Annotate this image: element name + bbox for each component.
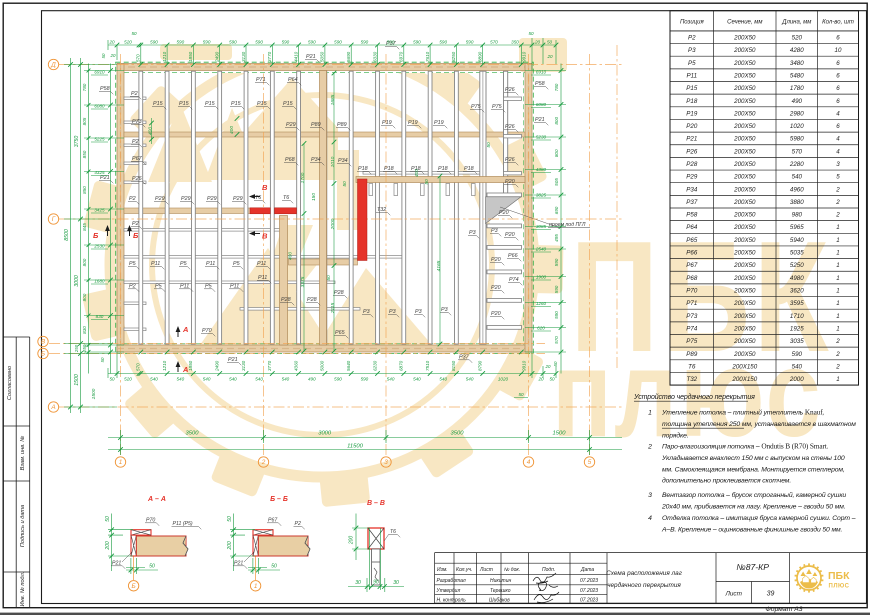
svg-text:5230: 5230 [536, 135, 547, 140]
svg-text:В: В [262, 232, 268, 241]
svg-text:850: 850 [82, 186, 87, 194]
svg-text:1: 1 [836, 288, 839, 295]
svg-text:1500: 1500 [553, 431, 567, 437]
svg-text:9910: 9910 [522, 360, 527, 371]
svg-text:Т6: Т6 [688, 363, 696, 370]
svg-text:8150: 8150 [451, 360, 456, 371]
svg-text:200Х50: 200Х50 [733, 98, 756, 105]
svg-text:3130: 3130 [241, 51, 246, 62]
svg-text:200: 200 [105, 541, 111, 551]
svg-text:Инв. № подл.: Инв. № подл. [20, 572, 26, 607]
svg-text:Шибаков: Шибаков [489, 598, 510, 604]
svg-text:590: 590 [439, 40, 447, 45]
svg-text:490: 490 [308, 377, 316, 382]
svg-text:805: 805 [82, 117, 87, 125]
svg-text:3620: 3620 [790, 288, 804, 295]
svg-text:200Х50: 200Х50 [733, 72, 756, 79]
svg-text:2: 2 [835, 186, 840, 193]
svg-text:Лист: Лист [724, 591, 742, 598]
svg-text:Позиция: Позиция [680, 20, 705, 26]
svg-text:6: 6 [836, 35, 840, 42]
svg-text:570: 570 [554, 336, 559, 344]
svg-text:Р5: Р5 [688, 60, 696, 67]
svg-text:1700: 1700 [300, 172, 306, 183]
svg-text:6: 6 [836, 60, 840, 67]
svg-text:200Х50: 200Х50 [733, 110, 756, 117]
svg-text:540: 540 [387, 377, 395, 382]
svg-text:830: 830 [96, 314, 104, 319]
svg-text:Р65: Р65 [686, 237, 698, 244]
svg-text:Длина, мм: Длина, мм [781, 20, 811, 26]
svg-text:Г: Г [52, 216, 56, 223]
svg-text:1020: 1020 [498, 377, 509, 382]
svg-text:8250: 8250 [451, 51, 456, 62]
svg-text:50: 50 [101, 53, 106, 58]
svg-text:4: 4 [836, 148, 840, 155]
svg-text:50: 50 [486, 142, 492, 148]
svg-text:Р68: Р68 [686, 275, 698, 282]
svg-text:50: 50 [100, 357, 105, 362]
svg-text:5480: 5480 [790, 72, 804, 79]
svg-text:590: 590 [334, 40, 342, 45]
svg-text:495: 495 [554, 234, 559, 242]
svg-text:1900: 1900 [536, 275, 547, 280]
svg-text:В – В: В – В [367, 500, 385, 507]
svg-text:570: 570 [792, 148, 803, 155]
svg-text:Кол.уч.: Кол.уч. [456, 567, 472, 573]
svg-text:20: 20 [537, 377, 544, 382]
svg-text:1210: 1210 [162, 360, 167, 371]
svg-text:5: 5 [836, 174, 840, 181]
svg-text:Изм.: Изм. [437, 567, 448, 573]
svg-text:50: 50 [131, 31, 137, 36]
svg-text:Р66: Р66 [686, 250, 698, 257]
svg-text:Т32: Т32 [686, 376, 697, 383]
svg-text:07.2023: 07.2023 [580, 578, 598, 584]
svg-text:Д: Д [50, 62, 56, 69]
svg-text:А: А [182, 325, 188, 334]
svg-text:200Х50: 200Х50 [733, 313, 756, 320]
svg-text:Устройство чердачного перекрыт: Устройство чердачного перекрытия [633, 393, 755, 401]
svg-text:200Х150: 200Х150 [731, 363, 757, 370]
svg-text:1850: 1850 [188, 51, 193, 62]
svg-text:А–В. Крепление – оцинкованные: А–В. Крепление – оцинкованные финишные г… [661, 525, 843, 533]
svg-text:6910: 6910 [536, 70, 547, 75]
svg-text:50: 50 [518, 392, 524, 397]
svg-text:4: 4 [648, 515, 652, 522]
svg-text:200Х50: 200Х50 [733, 123, 756, 130]
svg-text:1: 1 [836, 250, 839, 257]
svg-text:Р34: Р34 [686, 186, 698, 193]
svg-text:Р64: Р64 [686, 224, 698, 231]
svg-text:6870: 6870 [399, 360, 404, 371]
svg-text:3: 3 [384, 459, 388, 466]
svg-text:6230: 6230 [372, 360, 377, 371]
svg-text:1: 1 [648, 410, 652, 417]
svg-text:8790: 8790 [478, 360, 483, 371]
svg-text:3770: 3770 [267, 51, 272, 62]
svg-text:Б – Б: Б – Б [270, 496, 288, 503]
svg-text:Р73: Р73 [686, 313, 698, 320]
svg-text:520: 520 [792, 35, 803, 42]
svg-text:590: 590 [203, 40, 211, 45]
svg-text:2980: 2980 [789, 110, 804, 117]
svg-text:Б: Б [93, 231, 99, 240]
svg-text:3595: 3595 [790, 300, 804, 307]
svg-text:Р26: Р26 [686, 148, 698, 155]
svg-text:200Х50: 200Х50 [733, 275, 756, 282]
svg-text:50: 50 [105, 516, 111, 522]
svg-text:4: 4 [527, 459, 531, 466]
svg-text:1260: 1260 [536, 301, 547, 306]
svg-text:10: 10 [835, 47, 842, 54]
svg-text:200Х50: 200Х50 [733, 161, 756, 168]
svg-text:1: 1 [119, 459, 123, 466]
svg-text:2000: 2000 [789, 376, 804, 383]
svg-text:540: 540 [229, 377, 237, 382]
svg-text:5250: 5250 [790, 262, 804, 269]
svg-text:20: 20 [108, 40, 115, 45]
svg-text:3000: 3000 [74, 275, 80, 287]
svg-text:590: 590 [176, 40, 184, 45]
svg-text:20: 20 [534, 40, 541, 45]
svg-text:5225: 5225 [94, 137, 105, 142]
svg-text:590: 590 [792, 351, 803, 358]
svg-text:350: 350 [511, 40, 519, 45]
svg-text:Б: Б [132, 583, 136, 590]
svg-text:5690: 5690 [346, 51, 351, 62]
svg-text:1500: 1500 [74, 374, 80, 386]
svg-text:2: 2 [835, 338, 840, 345]
svg-text:Р19: Р19 [686, 110, 698, 117]
svg-text:3085: 3085 [536, 224, 547, 229]
svg-text:200Х50: 200Х50 [733, 224, 756, 231]
svg-text:570: 570 [136, 54, 141, 62]
svg-text:3480: 3480 [790, 60, 804, 67]
svg-text:90: 90 [373, 580, 379, 586]
svg-text:Р21: Р21 [686, 136, 697, 143]
svg-text:540: 540 [176, 377, 184, 382]
svg-text:50: 50 [547, 40, 553, 45]
svg-text:4165: 4165 [436, 260, 442, 271]
svg-text:1680: 1680 [94, 279, 105, 284]
svg-text:2: 2 [261, 459, 266, 466]
svg-text:50: 50 [553, 361, 558, 366]
svg-text:540: 540 [792, 174, 803, 181]
svg-text:200Х50: 200Х50 [733, 250, 756, 257]
svg-text:200Х50: 200Х50 [733, 338, 756, 345]
svg-text:830: 830 [82, 326, 87, 334]
svg-text:590: 590 [361, 377, 369, 382]
svg-text:3130: 3130 [241, 360, 246, 371]
svg-text:800: 800 [554, 117, 559, 125]
svg-text:07.2023: 07.2023 [580, 588, 598, 594]
svg-text:50: 50 [149, 564, 155, 570]
svg-text:Взам. инв. №: Взам. инв. № [20, 436, 26, 471]
svg-text:1010: 1010 [330, 156, 336, 167]
svg-text:9910: 9910 [522, 51, 527, 62]
svg-text:39: 39 [767, 591, 775, 598]
svg-text:6080: 6080 [94, 104, 105, 109]
svg-text:200Х50: 200Х50 [733, 35, 756, 42]
svg-text:Р37: Р37 [686, 199, 698, 206]
svg-text:200Х150: 200Х150 [731, 376, 757, 383]
svg-text:200Х50: 200Х50 [733, 351, 756, 358]
svg-text:2: 2 [835, 199, 840, 206]
svg-text:Лист: Лист [479, 567, 493, 573]
svg-text:3500: 3500 [186, 431, 200, 437]
svg-text:6: 6 [836, 85, 840, 92]
svg-text:Утепление потолка – плитный ут: Утепление потолка – плитный утеплитель K… [661, 408, 825, 417]
svg-text:Согласовано: Согласовано [7, 366, 13, 400]
svg-text:570: 570 [136, 363, 141, 371]
svg-text:540: 540 [150, 377, 158, 382]
svg-text:1: 1 [836, 262, 839, 269]
svg-text:6: 6 [836, 98, 840, 105]
svg-text:Сечение, мм: Сечение, мм [727, 20, 762, 26]
svg-text:2530: 2530 [93, 244, 105, 249]
svg-text:1500: 1500 [91, 388, 97, 399]
svg-text:7610: 7610 [425, 51, 430, 62]
svg-text:2: 2 [647, 444, 652, 451]
svg-text:4: 4 [836, 136, 840, 143]
svg-text:400: 400 [414, 169, 420, 177]
svg-text:590: 590 [387, 40, 395, 45]
svg-text:3035: 3035 [790, 338, 804, 345]
svg-text:690: 690 [554, 206, 559, 214]
svg-text:540: 540 [792, 363, 803, 370]
svg-text:590: 590 [413, 40, 421, 45]
svg-text:590: 590 [554, 285, 559, 293]
svg-text:6330: 6330 [372, 51, 377, 62]
svg-text:400: 400 [229, 126, 235, 134]
svg-text:Никитин: Никитин [490, 578, 511, 584]
svg-text:1: 1 [836, 275, 839, 282]
svg-text:Терешко: Терешко [490, 588, 511, 594]
svg-text:Паро-влагоизоляция потолка – O: Паро-влагоизоляция потолка – Ondutis B (… [662, 442, 829, 451]
svg-text:6: 6 [836, 123, 840, 130]
svg-text:мм. Самоклеящаяся мембрана. Мо: мм. Самоклеящаяся мембрана. Монтируется … [662, 465, 845, 473]
svg-text:980: 980 [792, 212, 803, 219]
svg-text:№ док.: № док. [504, 567, 520, 573]
svg-text:200Х50: 200Х50 [733, 199, 756, 206]
svg-text:5640: 5640 [346, 360, 351, 371]
svg-text:Б: Б [41, 351, 45, 358]
svg-text:1: 1 [254, 583, 258, 590]
svg-text:5940: 5940 [790, 237, 804, 244]
svg-text:4360: 4360 [293, 360, 298, 371]
svg-text:А – А: А – А [147, 496, 166, 503]
svg-text:толщина утепления 250 мм, уста: толщина утепления 250 мм, устанавливаетс… [662, 421, 856, 428]
svg-text:540: 540 [413, 377, 421, 382]
svg-text:Утвердил: Утвердил [437, 588, 461, 594]
svg-text:6080: 6080 [536, 102, 547, 107]
svg-text:570: 570 [490, 40, 498, 45]
svg-text:3375: 3375 [300, 276, 306, 287]
svg-text:590: 590 [361, 40, 369, 45]
svg-text:490: 490 [792, 98, 803, 105]
svg-text:Р74: Р74 [686, 325, 698, 332]
svg-text:проем под ПГЛ: проем под ПГЛ [549, 222, 586, 228]
svg-text:200Х50: 200Х50 [733, 186, 756, 193]
svg-text:6970: 6970 [399, 51, 404, 62]
svg-text:3: 3 [836, 161, 840, 168]
svg-text:30: 30 [393, 580, 399, 586]
svg-text:Р3: Р3 [688, 47, 696, 54]
svg-text:540: 540 [439, 377, 447, 382]
svg-text:7510: 7510 [425, 360, 430, 371]
svg-text:200: 200 [227, 541, 233, 551]
svg-text:порядке.: порядке. [662, 431, 689, 439]
svg-text:А: А [50, 404, 55, 411]
svg-text:200Х50: 200Х50 [733, 85, 756, 92]
svg-text:3: 3 [648, 492, 652, 499]
svg-text:400: 400 [288, 252, 294, 260]
svg-text:4325: 4325 [94, 170, 105, 175]
svg-text:200Х50: 200Х50 [733, 262, 756, 269]
svg-text:590: 590 [334, 377, 342, 382]
svg-text:Р20: Р20 [686, 123, 698, 130]
svg-text:1925: 1925 [790, 325, 804, 332]
svg-text:Подп.: Подп. [542, 567, 555, 573]
svg-text:Вентзазор потолка – брусок ст: Вентзазор потолка – брусок строганный, к… [662, 491, 846, 499]
svg-text:800: 800 [82, 293, 87, 301]
svg-text:200Х50: 200Х50 [733, 237, 756, 244]
svg-text:Р67: Р67 [686, 262, 698, 269]
svg-text:520: 520 [124, 377, 132, 382]
svg-text:6: 6 [836, 72, 840, 79]
svg-text:2: 2 [835, 351, 840, 358]
svg-text:200Х50: 200Х50 [733, 148, 756, 155]
svg-text:50: 50 [342, 181, 348, 187]
svg-text:Разработал: Разработал [437, 578, 466, 584]
svg-text:5035: 5035 [790, 250, 804, 257]
svg-text:4380: 4380 [536, 167, 547, 172]
svg-text:дополнительно проклеивается ск: дополнительно проклеивается скотчем. [662, 477, 791, 485]
svg-text:4960: 4960 [790, 186, 804, 193]
svg-text:590: 590 [466, 40, 474, 45]
svg-text:620: 620 [537, 326, 545, 331]
svg-text:Кол-во, шт: Кол-во, шт [822, 20, 854, 26]
svg-text:4: 4 [836, 110, 840, 117]
svg-text:07.2023: 07.2023 [580, 598, 598, 604]
svg-text:Дата: Дата [580, 567, 594, 573]
svg-text:5050: 5050 [320, 51, 325, 62]
svg-text:ПЛЮС: ПЛЮС [829, 584, 850, 590]
svg-text:200Х50: 200Х50 [733, 212, 756, 219]
svg-text:200Х50: 200Х50 [733, 136, 756, 143]
svg-text:50: 50 [549, 377, 555, 382]
svg-text:590: 590 [308, 40, 316, 45]
svg-text:50: 50 [271, 564, 277, 570]
svg-text:590: 590 [554, 311, 559, 319]
svg-text:200Х50: 200Х50 [733, 325, 756, 332]
svg-text:200: 200 [349, 536, 355, 546]
svg-text:Р71: Р71 [686, 300, 697, 307]
svg-text:3880: 3880 [790, 199, 804, 206]
svg-text:20: 20 [110, 53, 116, 58]
svg-text:Н. контроль: Н. контроль [437, 598, 467, 604]
svg-text:250: 250 [74, 344, 79, 353]
svg-text:590: 590 [150, 40, 158, 45]
svg-text:11500: 11500 [347, 444, 363, 450]
svg-text:400: 400 [148, 127, 154, 135]
svg-text:В: В [262, 183, 268, 192]
svg-text:1685: 1685 [330, 94, 336, 105]
svg-text:Р28: Р28 [686, 161, 698, 168]
svg-text:590: 590 [282, 40, 290, 45]
svg-text:800: 800 [554, 149, 559, 157]
svg-text:540: 540 [466, 377, 474, 382]
svg-text:3750: 3750 [74, 136, 80, 148]
svg-text:Р75: Р75 [686, 338, 698, 345]
svg-text:чердачного перекрытия: чердачного перекрытия [607, 581, 681, 589]
svg-text:200Х50: 200Х50 [733, 300, 756, 307]
svg-text:50: 50 [326, 275, 332, 281]
svg-text:2540: 2540 [535, 247, 547, 252]
svg-text:50: 50 [424, 179, 430, 185]
svg-text:200Х50: 200Х50 [733, 288, 756, 295]
svg-text:50: 50 [227, 516, 233, 522]
svg-text:150: 150 [311, 193, 317, 201]
svg-text:540: 540 [203, 377, 211, 382]
svg-text:520: 520 [124, 40, 132, 45]
svg-text:5000: 5000 [320, 360, 325, 371]
svg-text:3425: 3425 [94, 208, 105, 213]
svg-text:3825: 3825 [536, 193, 547, 198]
svg-text:Р18: Р18 [686, 98, 698, 105]
svg-text:Р2: Р2 [688, 35, 696, 42]
svg-text:Р89: Р89 [686, 351, 698, 358]
svg-text:1780: 1780 [790, 85, 804, 92]
svg-text:Укладывается внахлест 150 мм с: Укладывается внахлест 150 мм с выпуском … [661, 454, 845, 462]
svg-text:2490: 2490 [215, 360, 220, 372]
svg-text:4280: 4280 [790, 47, 804, 54]
svg-text:1020: 1020 [790, 123, 804, 130]
svg-text:800: 800 [82, 258, 87, 266]
svg-text:2000: 2000 [330, 218, 336, 230]
svg-text:200Х50: 200Х50 [733, 47, 756, 54]
svg-text:Р58: Р58 [686, 212, 698, 219]
svg-text:590: 590 [229, 40, 237, 45]
svg-text:Подпись и дата: Подпись и дата [20, 505, 26, 547]
svg-text:Р29: Р29 [686, 174, 698, 181]
svg-text:540: 540 [282, 377, 290, 382]
svg-text:1710: 1710 [790, 313, 804, 320]
svg-text:3500: 3500 [451, 431, 465, 437]
svg-text:4410: 4410 [293, 51, 298, 62]
svg-text:Б: Б [133, 231, 139, 240]
svg-text:845: 845 [82, 223, 87, 231]
svg-text:20: 20 [546, 54, 553, 59]
svg-text:2115: 2115 [330, 303, 336, 315]
svg-text:1850: 1850 [188, 360, 193, 371]
svg-text:1210: 1210 [162, 51, 167, 62]
svg-text:590: 590 [255, 40, 263, 45]
svg-text:В: В [41, 339, 46, 346]
svg-text:3000: 3000 [318, 431, 332, 437]
svg-text:1: 1 [836, 325, 839, 332]
svg-text:50: 50 [109, 377, 115, 382]
svg-text:200Х50: 200Х50 [733, 60, 756, 67]
svg-text:50: 50 [528, 31, 534, 36]
svg-text:4980: 4980 [790, 275, 804, 282]
svg-text:780: 780 [82, 83, 87, 91]
svg-text:5: 5 [588, 459, 592, 466]
svg-text:Формат А3: Формат А3 [765, 606, 802, 613]
svg-text:1: 1 [836, 313, 839, 320]
svg-text:6910: 6910 [94, 70, 105, 75]
